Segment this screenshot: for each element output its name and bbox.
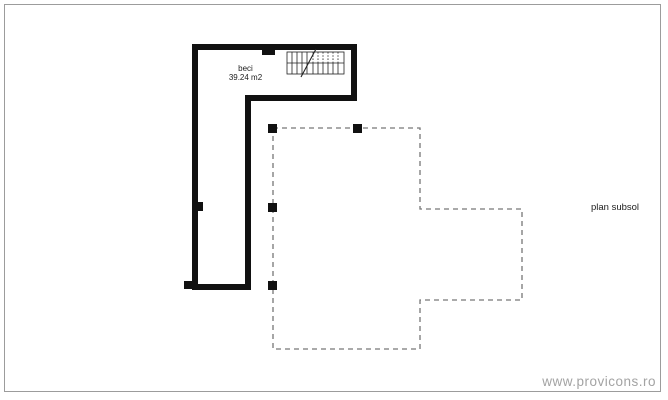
column [184,281,192,289]
column [353,124,362,133]
floorplan-drawing [0,0,668,400]
watermark-url: www.provicons.ro [542,374,656,389]
upper-floor-outline [273,128,522,349]
column [268,281,277,290]
room-area: 39.24 m2 [198,73,293,82]
room-label: beci 39.24 m2 [198,64,293,82]
column [268,124,277,133]
column [268,203,277,212]
plan-caption: plan subsol [570,202,660,213]
column [196,202,203,211]
room-name: beci [198,64,293,73]
column [262,50,275,55]
stairs-icon [287,49,344,77]
